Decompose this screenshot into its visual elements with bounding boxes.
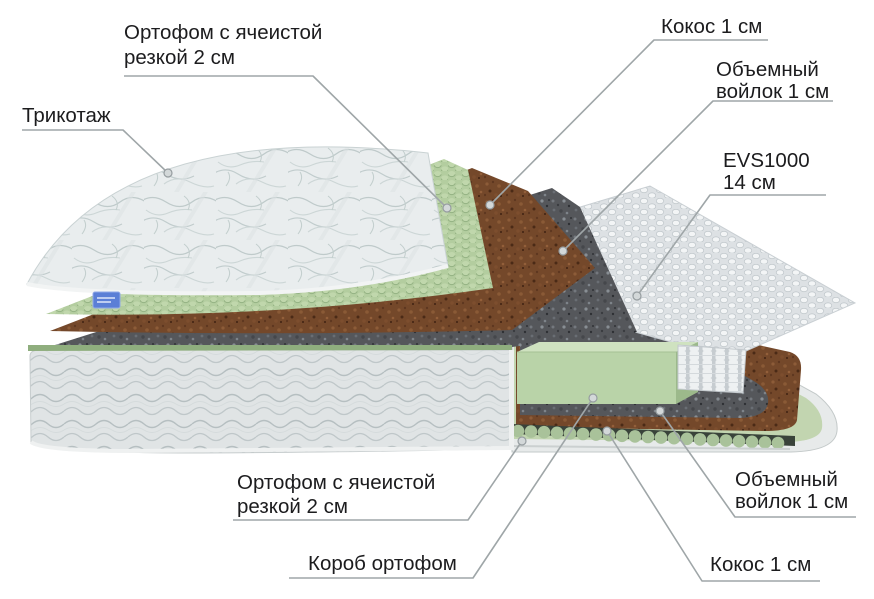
mattress-diagram: Ортофом с ячеистой резкой 2 см Трикотаж … [0,0,874,599]
label-felt-top-line2: войлок 1 см [716,80,829,103]
spring-coils-front [678,345,746,393]
label-springs-line2: 14 см [723,171,776,194]
box-cut-edge [509,350,514,450]
label-tricot: Трикотаж [22,104,111,127]
label-felt-top-line1: Объемный [716,58,819,81]
tricot-topper [27,147,448,293]
label-felt-bottom-line2: войлок 1 см [735,490,848,513]
box-front-fabric [30,350,512,453]
label-felt-bottom-line1: Объемный [735,468,838,491]
dot-box [589,394,597,402]
dot-orthofoam-bottom [518,437,526,445]
dot-felt-top [559,247,567,255]
dot-coco-bottom [603,427,611,435]
mattress-diagram-page: Ортофом с ячеистой резкой 2 см Трикотаж … [0,0,874,599]
label-orthofoam-top-line1: Ортофом с ячеистой [124,21,322,44]
orthofoam-box-block [517,342,698,404]
label-orthofoam-top-line2: резкой 2 см [124,46,235,69]
label-coco-top: Кокос 1 см [661,15,762,38]
label-orthofoam-bottom-line1: Ортофом с ячеистой [237,471,435,494]
dot-springs [633,292,641,300]
dot-felt-bottom [656,407,664,415]
green-divider-line [28,345,512,351]
dot-tricot [164,169,172,177]
label-box: Короб ортофом [308,552,457,575]
label-springs-line1: EVS1000 [723,149,810,172]
dot-coco-top [486,201,494,209]
dot-orthofoam-top [443,204,451,212]
brand-tag [93,292,120,308]
leader-tricot [22,130,168,173]
label-orthofoam-bottom-line2: резкой 2 см [237,495,348,518]
label-coco-bottom: Кокос 1 см [710,553,811,576]
